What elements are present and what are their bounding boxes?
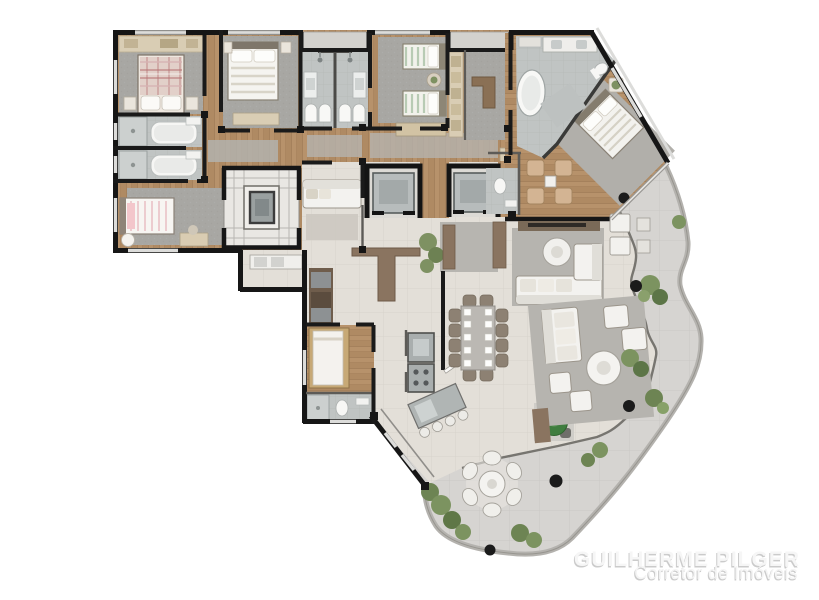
svg-text:Corretor de Imóveis: Corretor de Imóveis — [634, 563, 798, 583]
